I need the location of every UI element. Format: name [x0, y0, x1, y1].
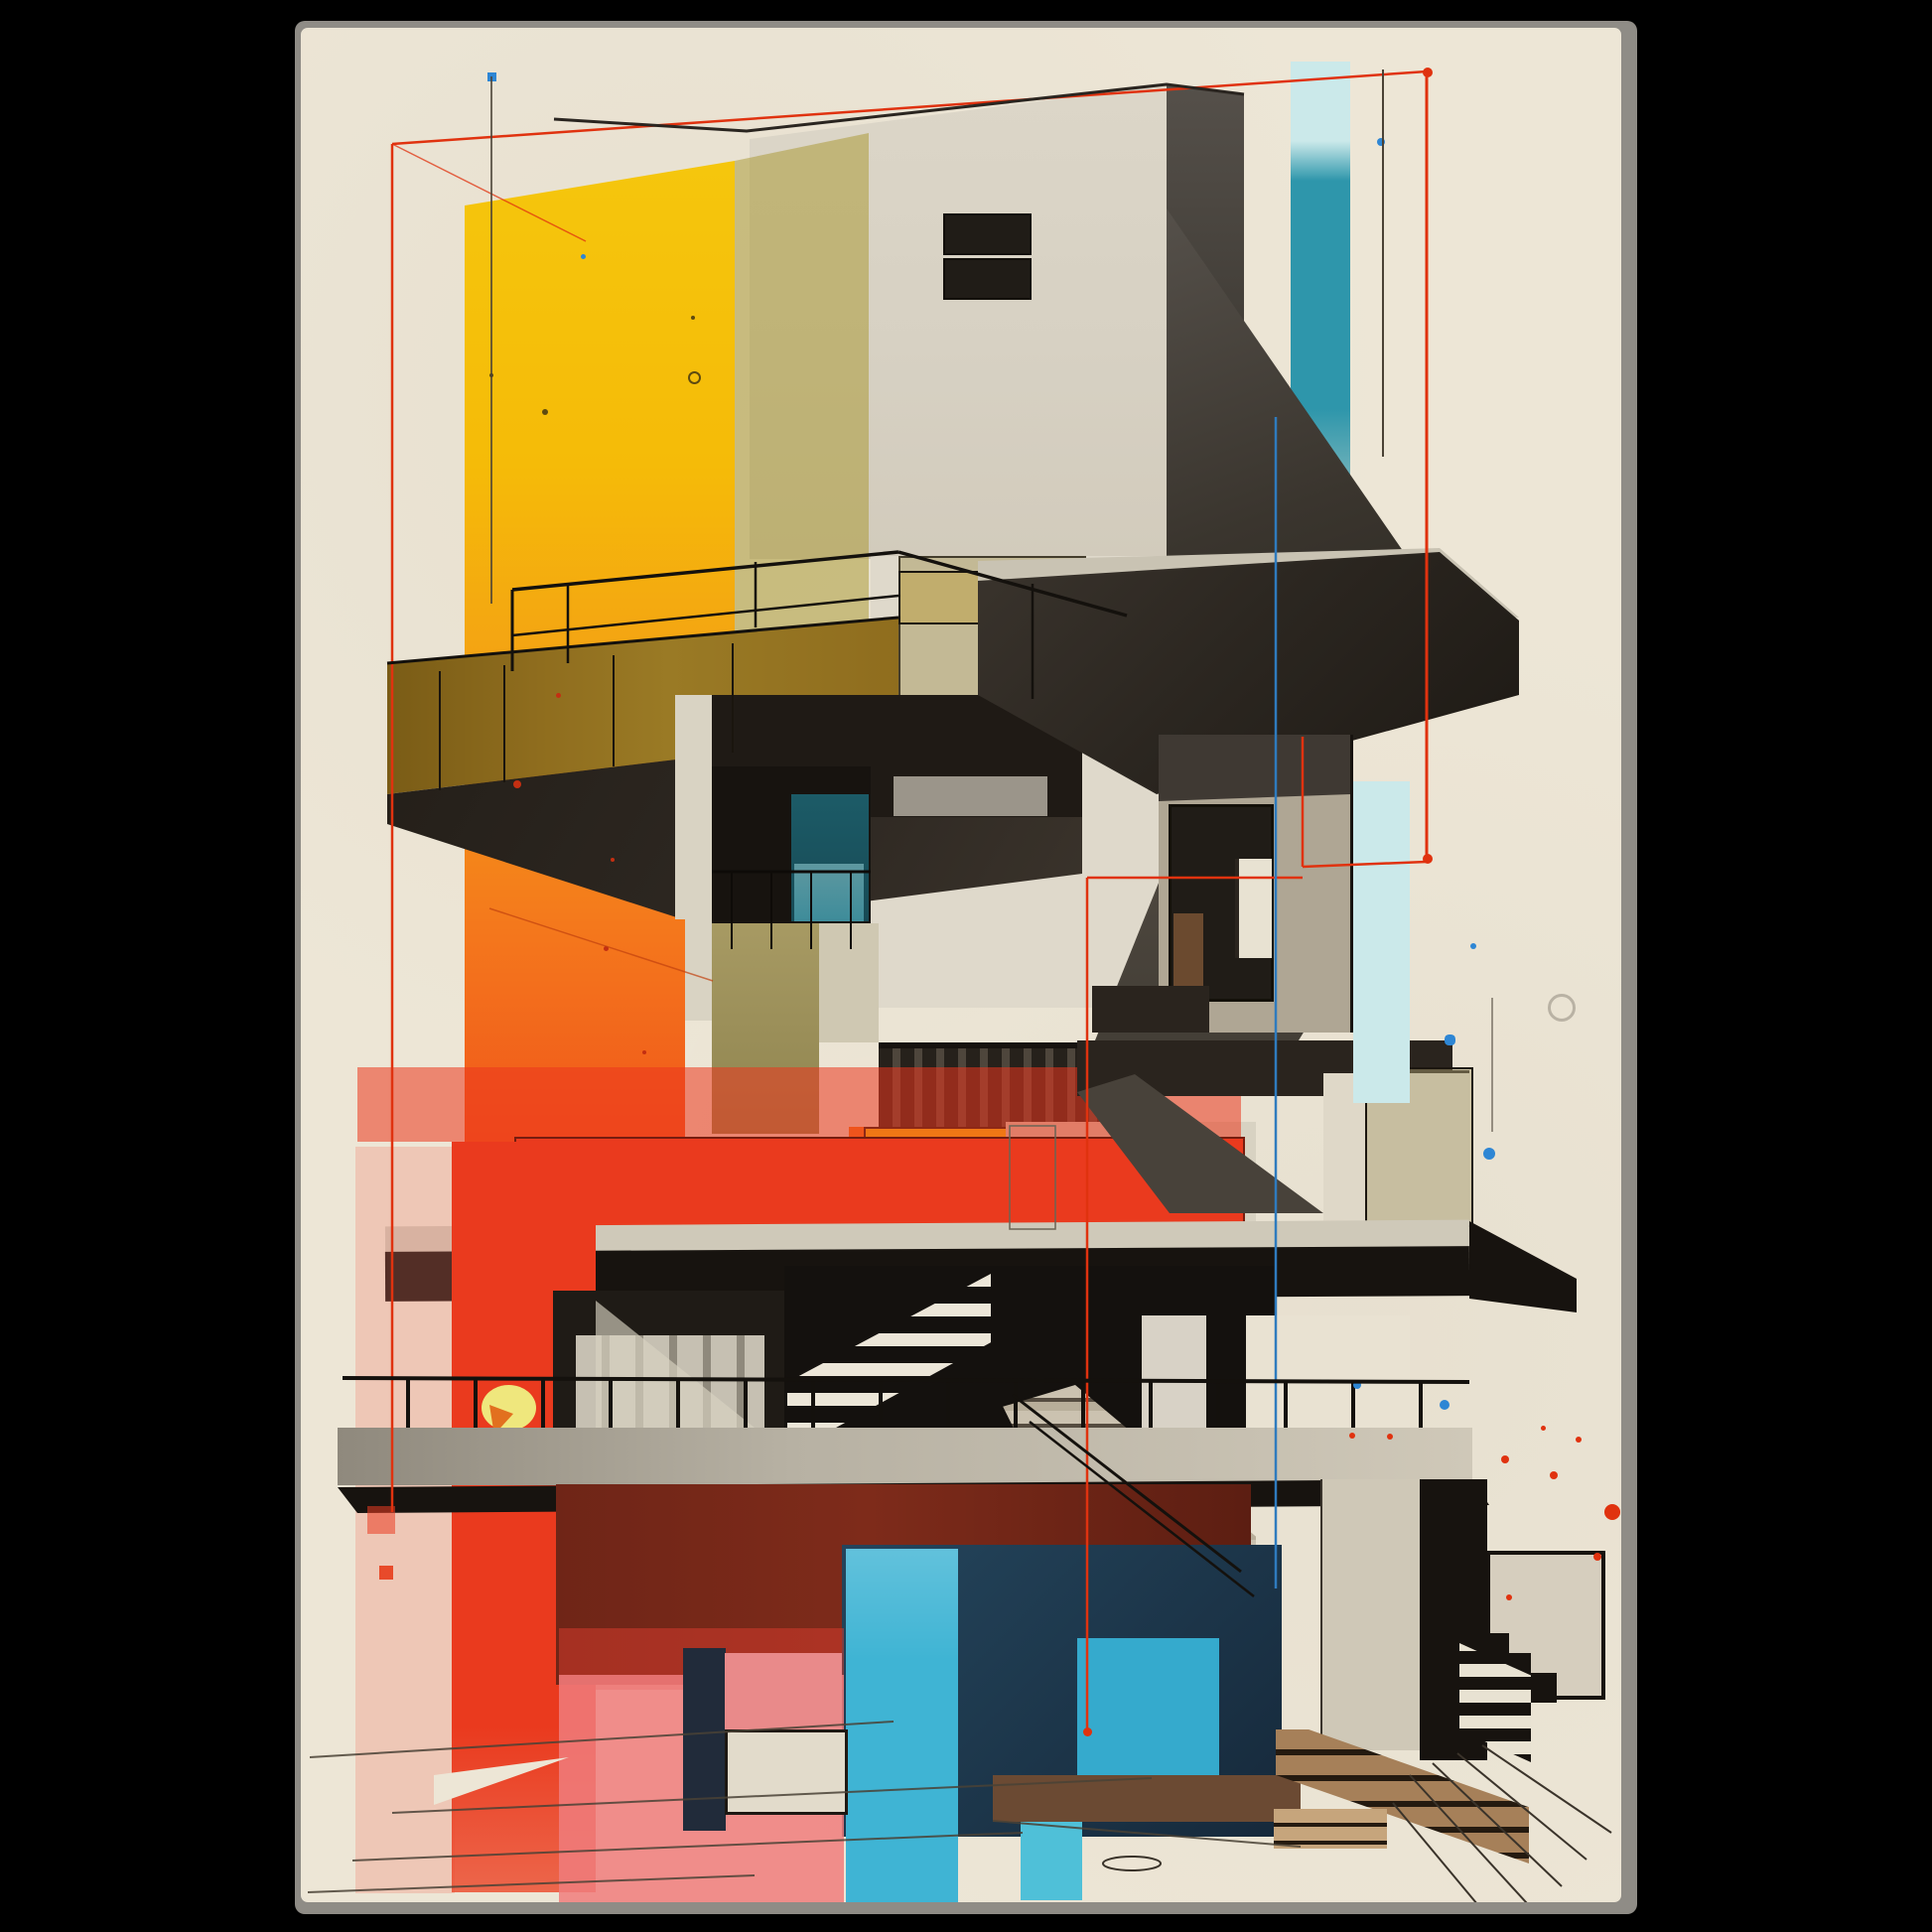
red-splat-2: [1576, 1437, 1582, 1443]
poster-edge: [295, 21, 1637, 1914]
yellow-figure-blob: [482, 1385, 536, 1431]
tan-small-steps: [1274, 1809, 1387, 1849]
navy-vertical-stroke: [683, 1648, 726, 1831]
red-tiny-square: [379, 1566, 393, 1580]
art-poster: [301, 28, 1621, 1902]
pink-panel: [725, 1653, 842, 1729]
red-splat-3: [1541, 1426, 1546, 1431]
blue-splat-1: [1445, 1035, 1455, 1045]
mid-right-roof-band: [1159, 735, 1350, 801]
blue-splat-2: [1483, 1148, 1495, 1160]
red-splat-1: [1550, 1471, 1558, 1479]
red-dot-end: [1083, 1727, 1092, 1736]
red-splat-7: [1501, 1455, 1509, 1463]
cigar-sketch: [1103, 1857, 1161, 1870]
red-dot-top: [1423, 68, 1433, 77]
brown-ground-band: [993, 1775, 1301, 1822]
red-small-square: [367, 1506, 395, 1534]
yellow-speck-1: [542, 409, 548, 415]
cyan-patch-left: [846, 1549, 958, 1902]
pale-cyan-rect: [1353, 781, 1410, 1103]
teal-curtain-light: [794, 864, 864, 921]
blue-splat-3: [1440, 1400, 1449, 1410]
plaster-gray-panel: [894, 776, 1047, 816]
floor-slab-right-wedge: [1469, 1221, 1577, 1312]
blue-dot-3: [1470, 943, 1476, 949]
orange-speck-4: [642, 1050, 646, 1054]
lower-balcony-slab: [338, 1428, 1472, 1485]
bottom-cream-window: [725, 1729, 848, 1815]
small-window-upper: [943, 213, 1032, 255]
concrete-pillar-face: [1320, 1479, 1422, 1750]
small-window-lower: [943, 258, 1032, 300]
yellow-speck-2: [489, 373, 493, 377]
yellow-ring-speck: [688, 371, 701, 384]
blue-square-dot: [487, 72, 496, 81]
mid-right-shelf: [1092, 986, 1209, 1033]
orange-speck-3: [604, 946, 609, 951]
orange-speck-2: [556, 693, 561, 698]
red-splat-5: [1506, 1594, 1512, 1600]
red-dot-mid: [1423, 854, 1433, 864]
mid-right-window-frame: [1235, 859, 1272, 958]
red-splat-6: [1387, 1434, 1393, 1440]
orange-speck-1: [513, 780, 521, 788]
blue-dot-2: [581, 254, 586, 259]
red-splat-8: [1349, 1433, 1355, 1439]
blue-dot-4: [1353, 1381, 1361, 1389]
cream-sliver: [819, 923, 879, 1042]
red-splat-big: [1604, 1504, 1620, 1520]
yellow-speck-3: [691, 316, 695, 320]
cyan-patch-small: [1021, 1819, 1082, 1900]
orange-speck-5: [611, 858, 615, 862]
black-backdrop: [0, 0, 1932, 1932]
red-splat-4: [1593, 1553, 1601, 1561]
sketch-circle: [1548, 994, 1576, 1022]
blue-dot-1: [1377, 138, 1385, 146]
